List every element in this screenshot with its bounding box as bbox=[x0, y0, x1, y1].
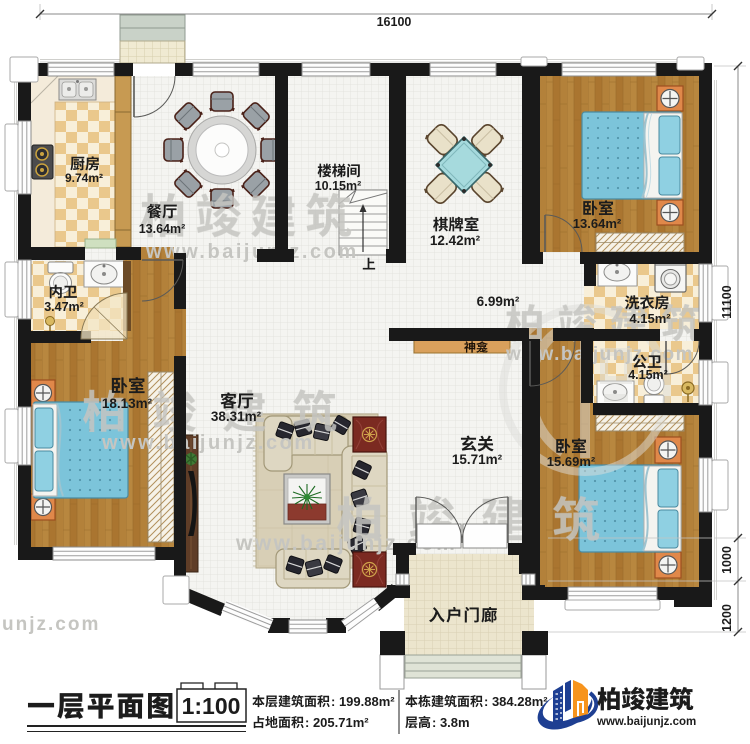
svg-text:3.47m²: 3.47m² bbox=[44, 300, 84, 314]
svg-text:9.74m²: 9.74m² bbox=[65, 171, 103, 185]
svg-text:38.31m²: 38.31m² bbox=[211, 409, 262, 424]
svg-text:16100: 16100 bbox=[377, 15, 412, 29]
svg-text:1200: 1200 bbox=[720, 604, 734, 632]
svg-text:12.42m²: 12.42m² bbox=[430, 233, 481, 248]
svg-text:4.15m²: 4.15m² bbox=[629, 311, 671, 326]
svg-text:1:100: 1:100 bbox=[182, 693, 241, 719]
svg-text:: 384.28m²: : 384.28m² bbox=[484, 694, 548, 709]
svg-text:13.64m²: 13.64m² bbox=[573, 216, 622, 231]
svg-text:13.64m²: 13.64m² bbox=[139, 222, 186, 236]
svg-text:1000: 1000 bbox=[720, 546, 734, 574]
svg-text:18.13m²: 18.13m² bbox=[102, 396, 153, 411]
svg-text:www.baijunjz.com: www.baijunjz.com bbox=[596, 716, 696, 728]
svg-text:: 3.8m: : 3.8m bbox=[432, 715, 470, 730]
svg-text:: 199.88m²: : 199.88m² bbox=[331, 694, 395, 709]
svg-text:11100: 11100 bbox=[720, 285, 734, 318]
svg-text:10.15m²: 10.15m² bbox=[315, 179, 362, 193]
svg-text:www.baijunjz.com: www.baijunjz.com bbox=[101, 432, 315, 454]
svg-text:15.71m²: 15.71m² bbox=[452, 452, 503, 467]
svg-text:15.69m²: 15.69m² bbox=[547, 454, 596, 469]
svg-text:6.99m²: 6.99m² bbox=[477, 294, 520, 309]
svg-text:4.15m²: 4.15m² bbox=[628, 368, 668, 382]
svg-text:: 205.71m²: : 205.71m² bbox=[305, 715, 369, 730]
svg-text:unjz.com: unjz.com bbox=[2, 614, 100, 635]
